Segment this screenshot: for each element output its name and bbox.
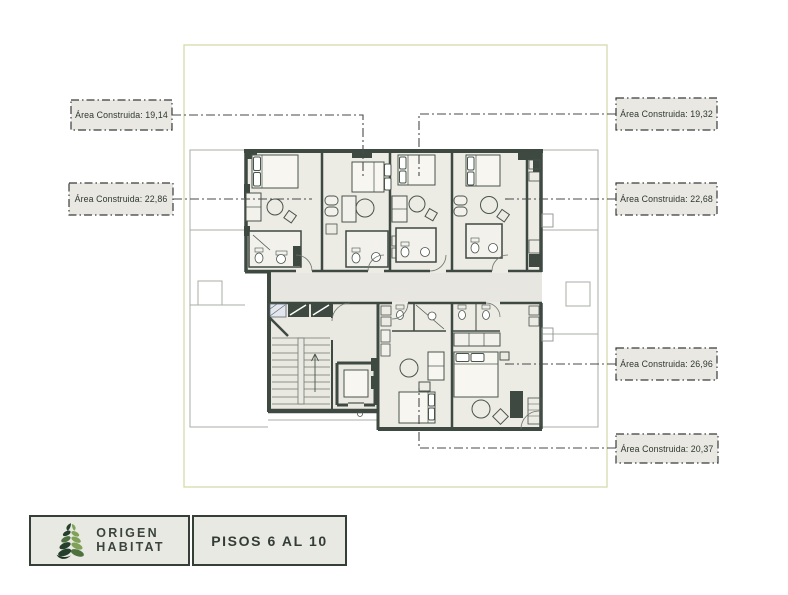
brand-name: ORIGEN HABITAT (96, 527, 164, 555)
brand-line-1: ORIGEN (96, 527, 164, 541)
origen-habitat-leaf-icon (54, 521, 88, 561)
right-wall-balconies (542, 214, 553, 341)
floorplan-drawing (0, 0, 788, 595)
brand-logo-box: ORIGEN HABITAT (29, 515, 190, 566)
floor-range-label: PISOS 6 AL 10 (211, 533, 328, 549)
floor-range-badge: PISOS 6 AL 10 (192, 515, 347, 566)
floorplan-page: Área Construida: 19,14 Área Construida: … (0, 0, 788, 595)
brand-line-2: HABITAT (96, 541, 164, 555)
